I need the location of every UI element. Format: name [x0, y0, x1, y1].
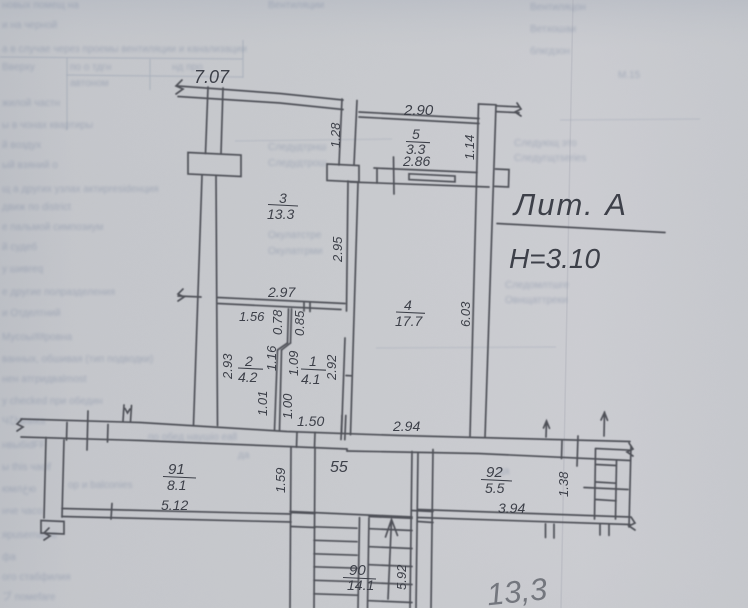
svg-text:Окулатгрми: Окулатгрми: [268, 246, 322, 257]
svg-text:2.95: 2.95: [330, 236, 345, 263]
svg-text:Вентиляцон: Вентиляцон: [530, 2, 586, 13]
svg-text:1: 1: [309, 353, 317, 369]
svg-text:4: 4: [404, 297, 412, 313]
svg-text:ор и balconies: ор и balconies: [68, 480, 133, 491]
svg-text:2: 2: [244, 353, 253, 369]
svg-text:Вверху: Вверху: [2, 62, 35, 73]
svg-text:Лит. А: Лит. А: [512, 187, 628, 222]
svg-text:4.1: 4.1: [301, 371, 320, 387]
svg-text:2.90: 2.90: [403, 102, 434, 119]
svg-text:щ а других узлах актирresidенц: щ а других узлах актирresidенция: [2, 184, 159, 195]
svg-text:движ по district: движ по district: [2, 202, 71, 213]
svg-text:6.03: 6.03: [458, 301, 473, 327]
svg-text:жилой частн: жилой частн: [2, 98, 60, 109]
svg-text:3: 3: [279, 190, 287, 206]
svg-text:2.92: 2.92: [324, 354, 339, 381]
svg-text:1.50: 1.50: [297, 413, 324, 429]
svg-text:Следующ это: Следующ это: [514, 138, 577, 149]
svg-text:3.94: 3.94: [498, 500, 525, 516]
svg-text:1.16: 1.16: [264, 345, 279, 371]
svg-text:Н=3.10: Н=3.10: [509, 243, 600, 274]
svg-text:Следудтрош: Следудтрош: [268, 158, 326, 169]
svg-text:й воздух: й воздух: [2, 140, 41, 151]
svg-text:Овнщаттреки: Овнщаттреки: [505, 295, 567, 306]
svg-text:2.94: 2.94: [392, 418, 420, 434]
svg-text:ブ помеfare: ブ помеfare: [2, 590, 56, 603]
svg-text:1.14: 1.14: [462, 135, 477, 160]
svg-text:и на черной: и на черной: [2, 20, 57, 31]
svg-text:у checked при обедин: у checked при обедин: [2, 395, 103, 407]
svg-text:2.97: 2.97: [267, 284, 296, 300]
svg-text:0.85: 0.85: [292, 310, 307, 336]
svg-text:2.93: 2.93: [220, 353, 235, 380]
svg-text:нвыбidFF: нвыбidFF: [2, 439, 46, 451]
svg-text:0.78: 0.78: [270, 309, 285, 335]
svg-text:й судеб: й судеб: [2, 241, 37, 253]
svg-text:Окулатстре: Окулатстре: [268, 230, 322, 241]
svg-text:7.07: 7.07: [194, 67, 230, 87]
svg-text:1.28: 1.28: [328, 122, 343, 148]
svg-text:е другие полразделения: е другие полразделения: [2, 287, 115, 298]
svg-text:Следугщтseries: Следугщтseries: [514, 153, 586, 164]
svg-text:а в случае через проемы вентил: а в случае через проемы вентиляции и кан…: [2, 44, 247, 55]
svg-text:5.12: 5.12: [161, 497, 188, 513]
svg-text:М.15: М.15: [618, 70, 641, 81]
svg-text:е пальмой симпозиум: е пальмой симпозиум: [2, 222, 104, 233]
svg-text:автоном: автоном: [70, 78, 109, 89]
svg-text:нче часо: нче часо: [2, 506, 43, 517]
svg-text:фа: фа: [2, 551, 16, 563]
svg-text:2.86: 2.86: [402, 153, 430, 169]
svg-text:ого стабфилия: ого стабфилия: [2, 571, 71, 583]
svg-text:13.3: 13.3: [267, 206, 294, 222]
svg-text:1.59: 1.59: [273, 468, 288, 493]
svg-text:и Отделтний: и Отделтний: [2, 308, 61, 319]
svg-text:блкгдзон: блкгдзон: [530, 45, 570, 57]
svg-text:4.2: 4.2: [238, 369, 258, 385]
svg-text:55: 55: [330, 459, 348, 476]
svg-text:92: 92: [486, 464, 503, 481]
svg-text:5.5: 5.5: [485, 480, 505, 496]
svg-text:Чひвника: Чひвника: [2, 416, 46, 427]
svg-text:8.1: 8.1: [167, 477, 186, 493]
svg-text:1.38: 1.38: [556, 471, 571, 497]
svg-text:5: 5: [412, 126, 420, 142]
svg-text:1.01: 1.01: [255, 391, 270, 416]
svg-text:да: да: [238, 450, 250, 461]
svg-text:по о тдгн: по о тдгн: [70, 62, 111, 73]
svg-text:5.92: 5.92: [394, 564, 409, 590]
svg-text:Ветхошаи: Ветхошаи: [530, 24, 576, 35]
svg-text:нен атгридвalmost: нен атгридвalmost: [2, 374, 87, 385]
svg-text:у шивreq: у шивreq: [2, 264, 43, 275]
svg-text:91: 91: [168, 461, 185, 478]
svg-text:13,3: 13,3: [485, 571, 549, 608]
svg-text:юмлڅю: юмлڅю: [2, 484, 37, 495]
svg-text:1.00: 1.00: [280, 393, 295, 419]
svg-text:ый взяний о: ый взяний о: [2, 160, 58, 171]
svg-text:ы в чонах квартиры: ы в чонах квартиры: [2, 120, 93, 131]
svg-text:17.7: 17.7: [395, 313, 423, 329]
svg-text:14.1: 14.1: [347, 577, 374, 593]
svg-text:Следудтрнш: Следудтрнш: [268, 142, 326, 153]
svg-text:Вентиляции: Вентиляции: [268, 0, 324, 11]
svg-text:ы this часif: ы this часif: [2, 462, 51, 473]
svg-text:1.56: 1.56: [239, 309, 265, 324]
svg-text:ванных, обшивая (тип подводки): ванных, обшивая (тип подводки): [2, 353, 153, 365]
svg-text:Следомлтшге: Следомлтшге: [505, 280, 570, 291]
svg-text:1.09: 1.09: [286, 351, 301, 376]
svg-text:Мусоыततровна: Мусоыततровна: [2, 332, 73, 343]
svg-text:новых помещ на: новых помещ на: [2, 0, 79, 11]
